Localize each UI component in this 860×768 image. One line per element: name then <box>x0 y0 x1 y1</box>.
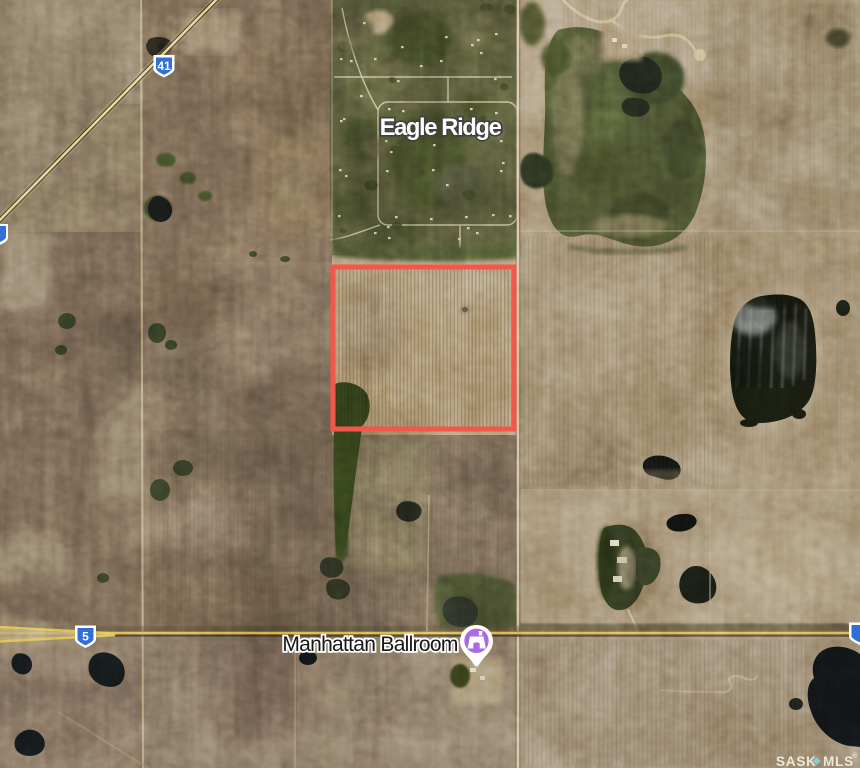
svg-text:41: 41 <box>157 59 171 73</box>
svg-text:®: ® <box>852 752 858 760</box>
svg-text:Eagle Ridge: Eagle Ridge <box>380 114 502 141</box>
svg-text:MLS: MLS <box>823 754 854 768</box>
svg-text:SASK: SASK <box>776 754 817 768</box>
svg-text:5: 5 <box>82 630 89 644</box>
svg-text:Manhattan Ballroom: Manhattan Ballroom <box>282 633 458 656</box>
